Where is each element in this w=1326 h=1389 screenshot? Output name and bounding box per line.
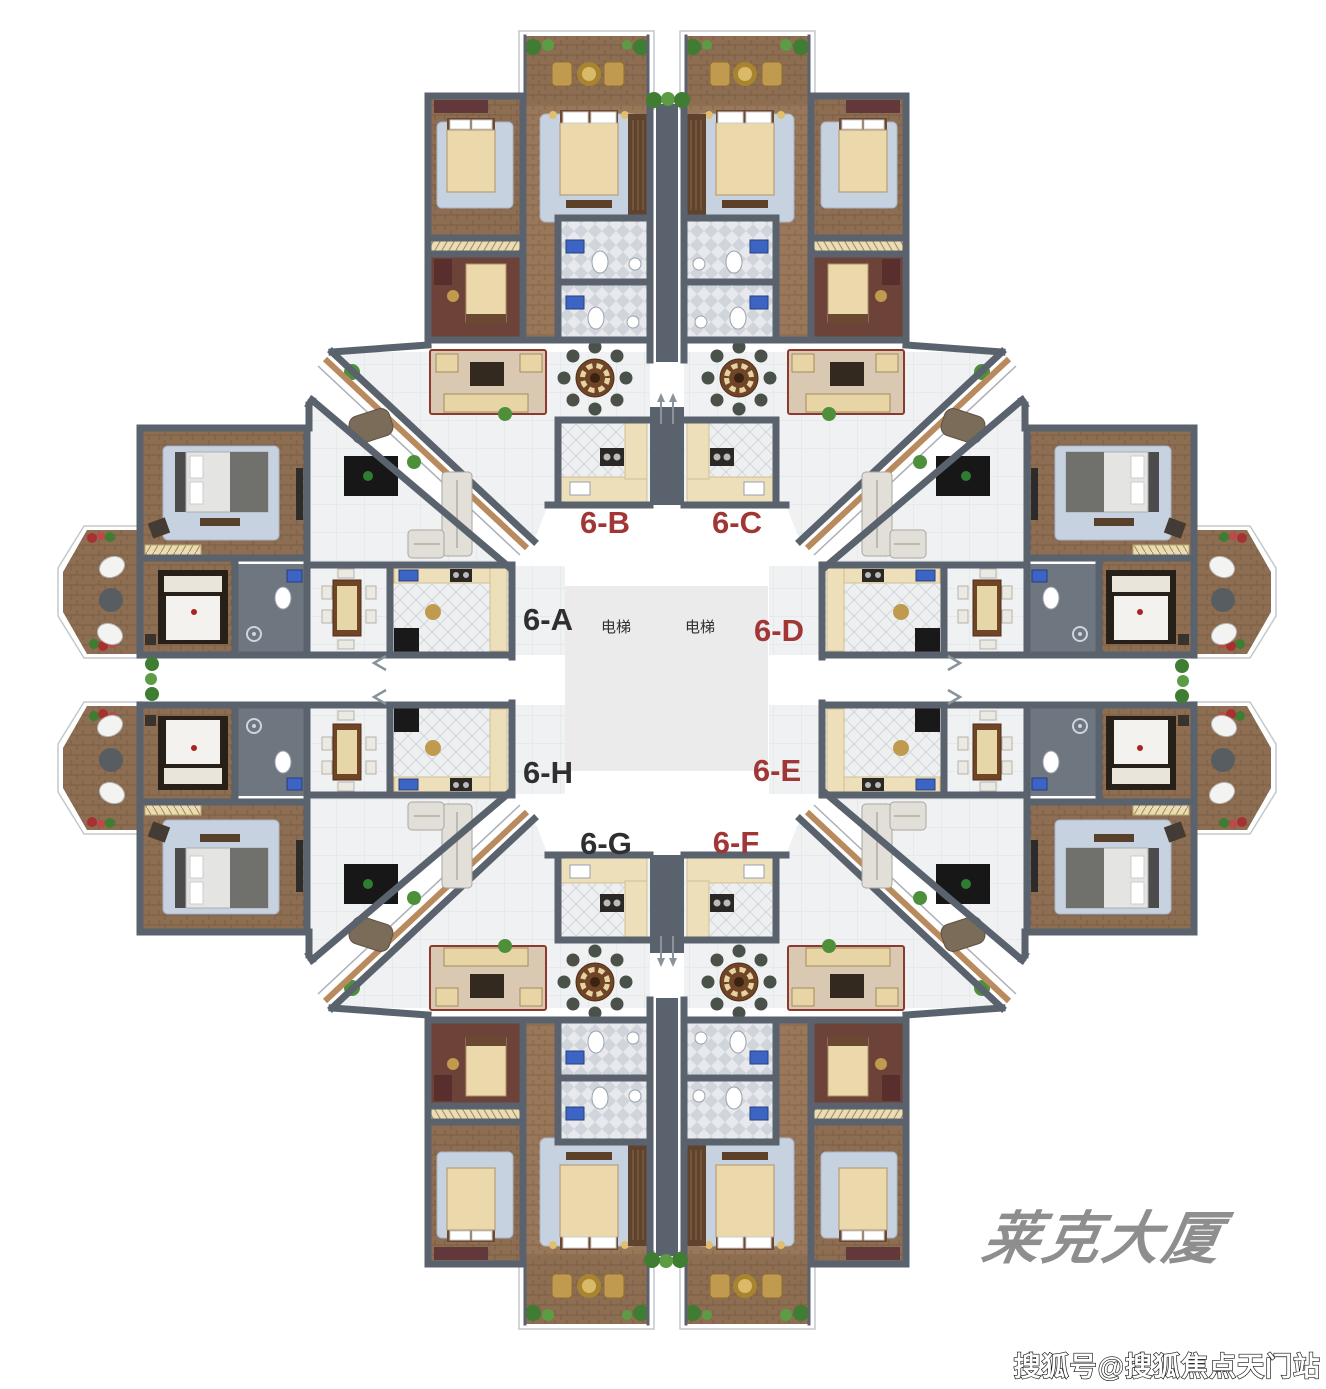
- unit-label-6-e: 6-E: [753, 753, 801, 788]
- unit-label-6-h: 6-H: [523, 755, 573, 790]
- unit-label-6-g: 6-G: [580, 826, 632, 861]
- unit-label-6-a: 6-A: [523, 602, 573, 637]
- watermark: 搜狐号@搜狐焦点天门站: [1014, 1351, 1321, 1382]
- elevator-label-left: 电梯: [601, 619, 631, 636]
- elevator-core: [565, 586, 768, 771]
- building-name: 莱克大厦: [978, 1207, 1236, 1271]
- unit-label-6-f: 6-F: [713, 825, 760, 860]
- arm-bottom: [318, 805, 1016, 1329]
- elevator-label-right: 电梯: [685, 619, 715, 636]
- unit-label-6-b: 6-B: [580, 505, 630, 540]
- arm-top: [318, 31, 1016, 555]
- floor-plan-canvas: 电梯 电梯 6-A 6-B 6-C 6-D 6-E 6-F 6-G 6-H 莱克…: [0, 0, 1326, 1389]
- floor-plan-page: 电梯 电梯 6-A 6-B 6-C 6-D 6-E 6-F 6-G 6-H 莱克…: [0, 0, 1326, 1389]
- unit-label-6-d: 6-D: [754, 613, 804, 648]
- unit-label-6-c: 6-C: [712, 505, 762, 540]
